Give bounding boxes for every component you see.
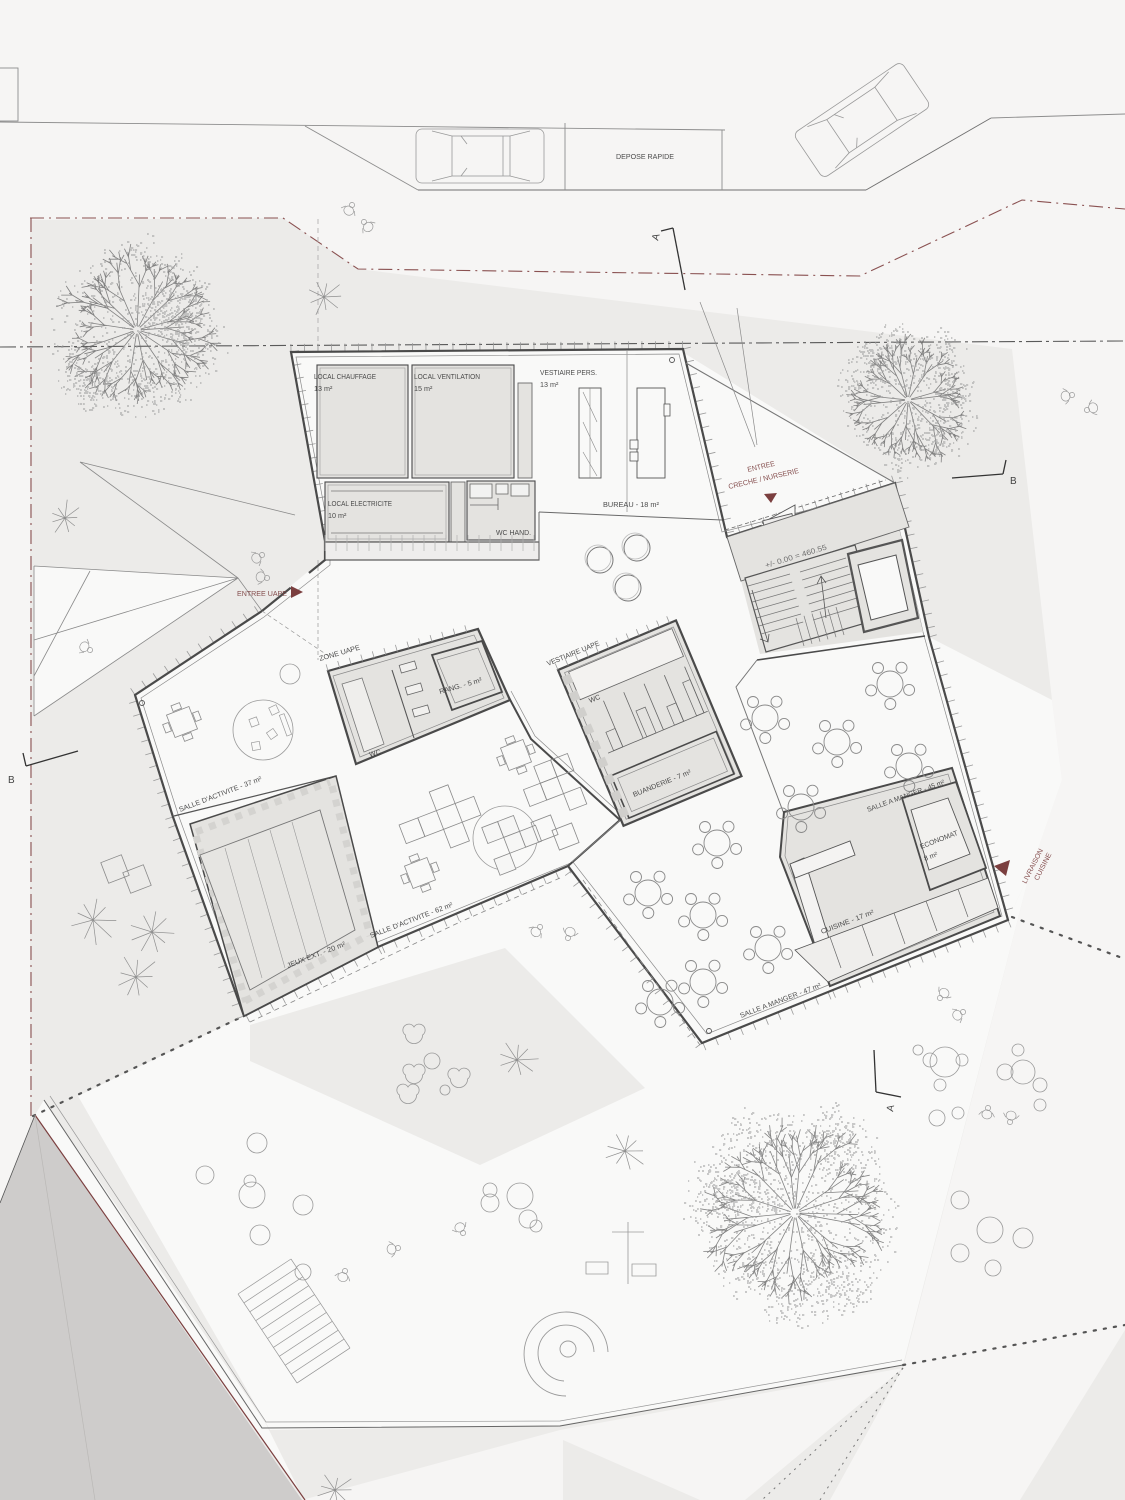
svg-text:13 m²: 13 m² — [540, 380, 559, 389]
svg-text:13 m²: 13 m² — [314, 384, 333, 393]
svg-text:B: B — [8, 775, 15, 786]
svg-text:VESTIAIRE PERS.: VESTIAIRE PERS. — [540, 368, 597, 377]
svg-text:15 m²: 15 m² — [414, 384, 433, 393]
svg-text:ENTREE UAPE: ENTREE UAPE — [237, 589, 287, 598]
svg-text:10 m²: 10 m² — [328, 511, 347, 520]
svg-text:LOCAL CHAUFFAGE: LOCAL CHAUFFAGE — [314, 372, 376, 381]
svg-text:DEPOSE RAPIDE: DEPOSE RAPIDE — [616, 152, 674, 161]
svg-text:B: B — [1010, 476, 1017, 487]
svg-text:LOCAL VENTILATION: LOCAL VENTILATION — [414, 372, 480, 381]
svg-text:LOCAL ELECTRICITE: LOCAL ELECTRICITE — [328, 499, 392, 508]
svg-text:BUREAU - 18 m²: BUREAU - 18 m² — [603, 500, 660, 509]
svg-text:WC HAND.: WC HAND. — [496, 528, 531, 537]
